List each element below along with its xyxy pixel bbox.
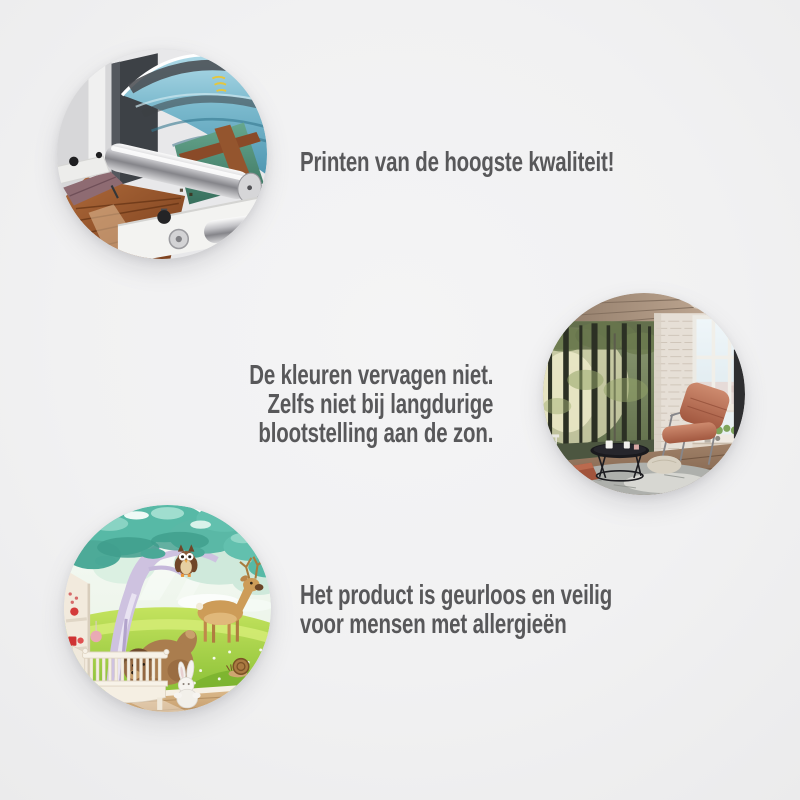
interior-photo xyxy=(543,293,745,495)
benefit-line: Zelfs niet bij langdurige xyxy=(249,389,493,418)
ladybug-figure xyxy=(226,694,233,701)
benefit-line: blootstelling aan de zon. xyxy=(249,418,493,447)
benefit-line: Printen van de hoogste kwaliteit! xyxy=(300,147,614,176)
benefit-text-print-quality: Printen van de hoogste kwaliteit! xyxy=(300,147,614,176)
printer-photo-illustration xyxy=(57,49,267,259)
benefit-line: De kleuren vervagen niet. xyxy=(249,360,493,389)
benefit-line: Het product is geurloos en veilig xyxy=(300,580,612,609)
nursery-photo-illustration xyxy=(64,505,271,712)
nursery-photo xyxy=(64,505,271,712)
print-machine-photo xyxy=(57,49,267,259)
benefit-line: voor mensen met allergieën xyxy=(300,609,612,638)
benefit-text-odorless-safe: Het product is geurloos en veilig voor m… xyxy=(300,580,612,638)
benefits-infographic: Printen van de hoogste kwaliteit! xyxy=(0,0,800,800)
interior-photo-illustration xyxy=(543,293,745,495)
benefit-text-color-fastness: De kleuren vervagen niet. Zelfs niet bij… xyxy=(249,360,493,447)
